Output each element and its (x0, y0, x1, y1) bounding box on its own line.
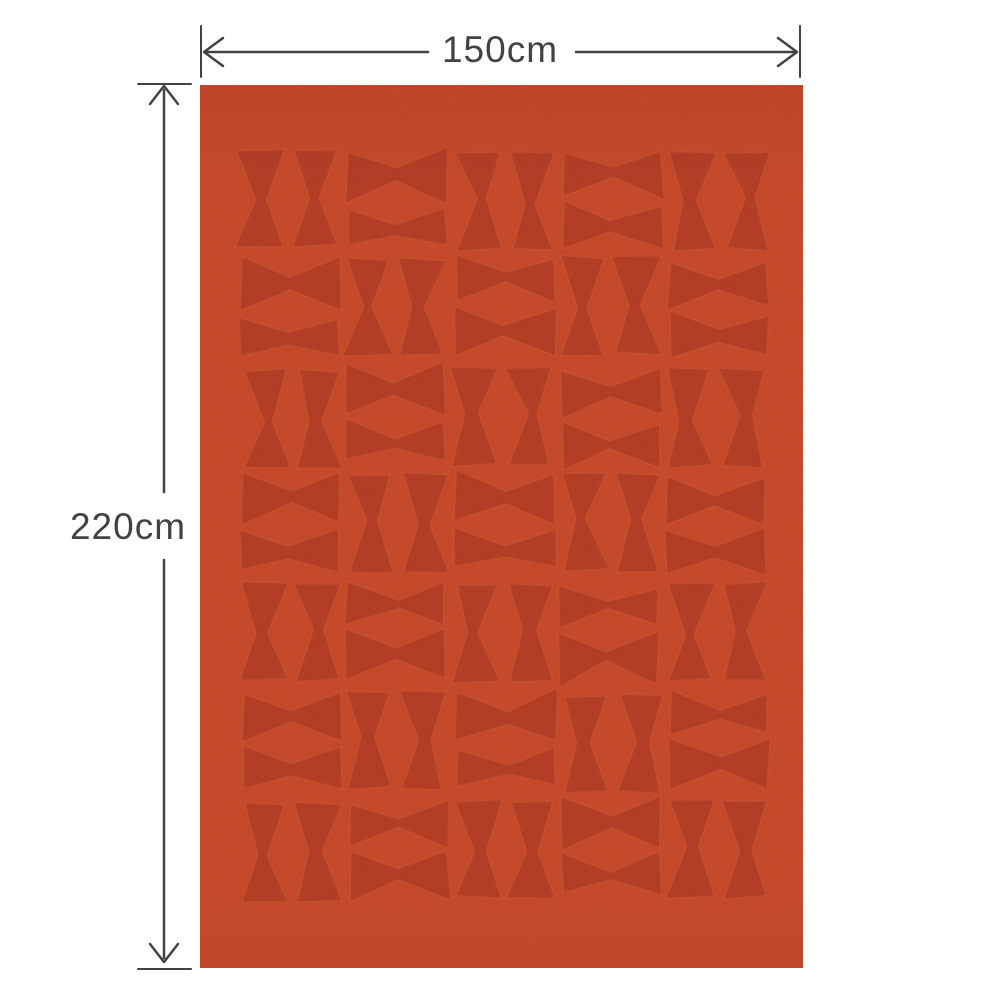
diagram-canvas (0, 0, 1000, 1000)
height-label: 220cm (38, 505, 218, 549)
fabric-texture (200, 85, 803, 968)
width-label: 150cm (410, 28, 590, 72)
blanket (200, 85, 803, 968)
